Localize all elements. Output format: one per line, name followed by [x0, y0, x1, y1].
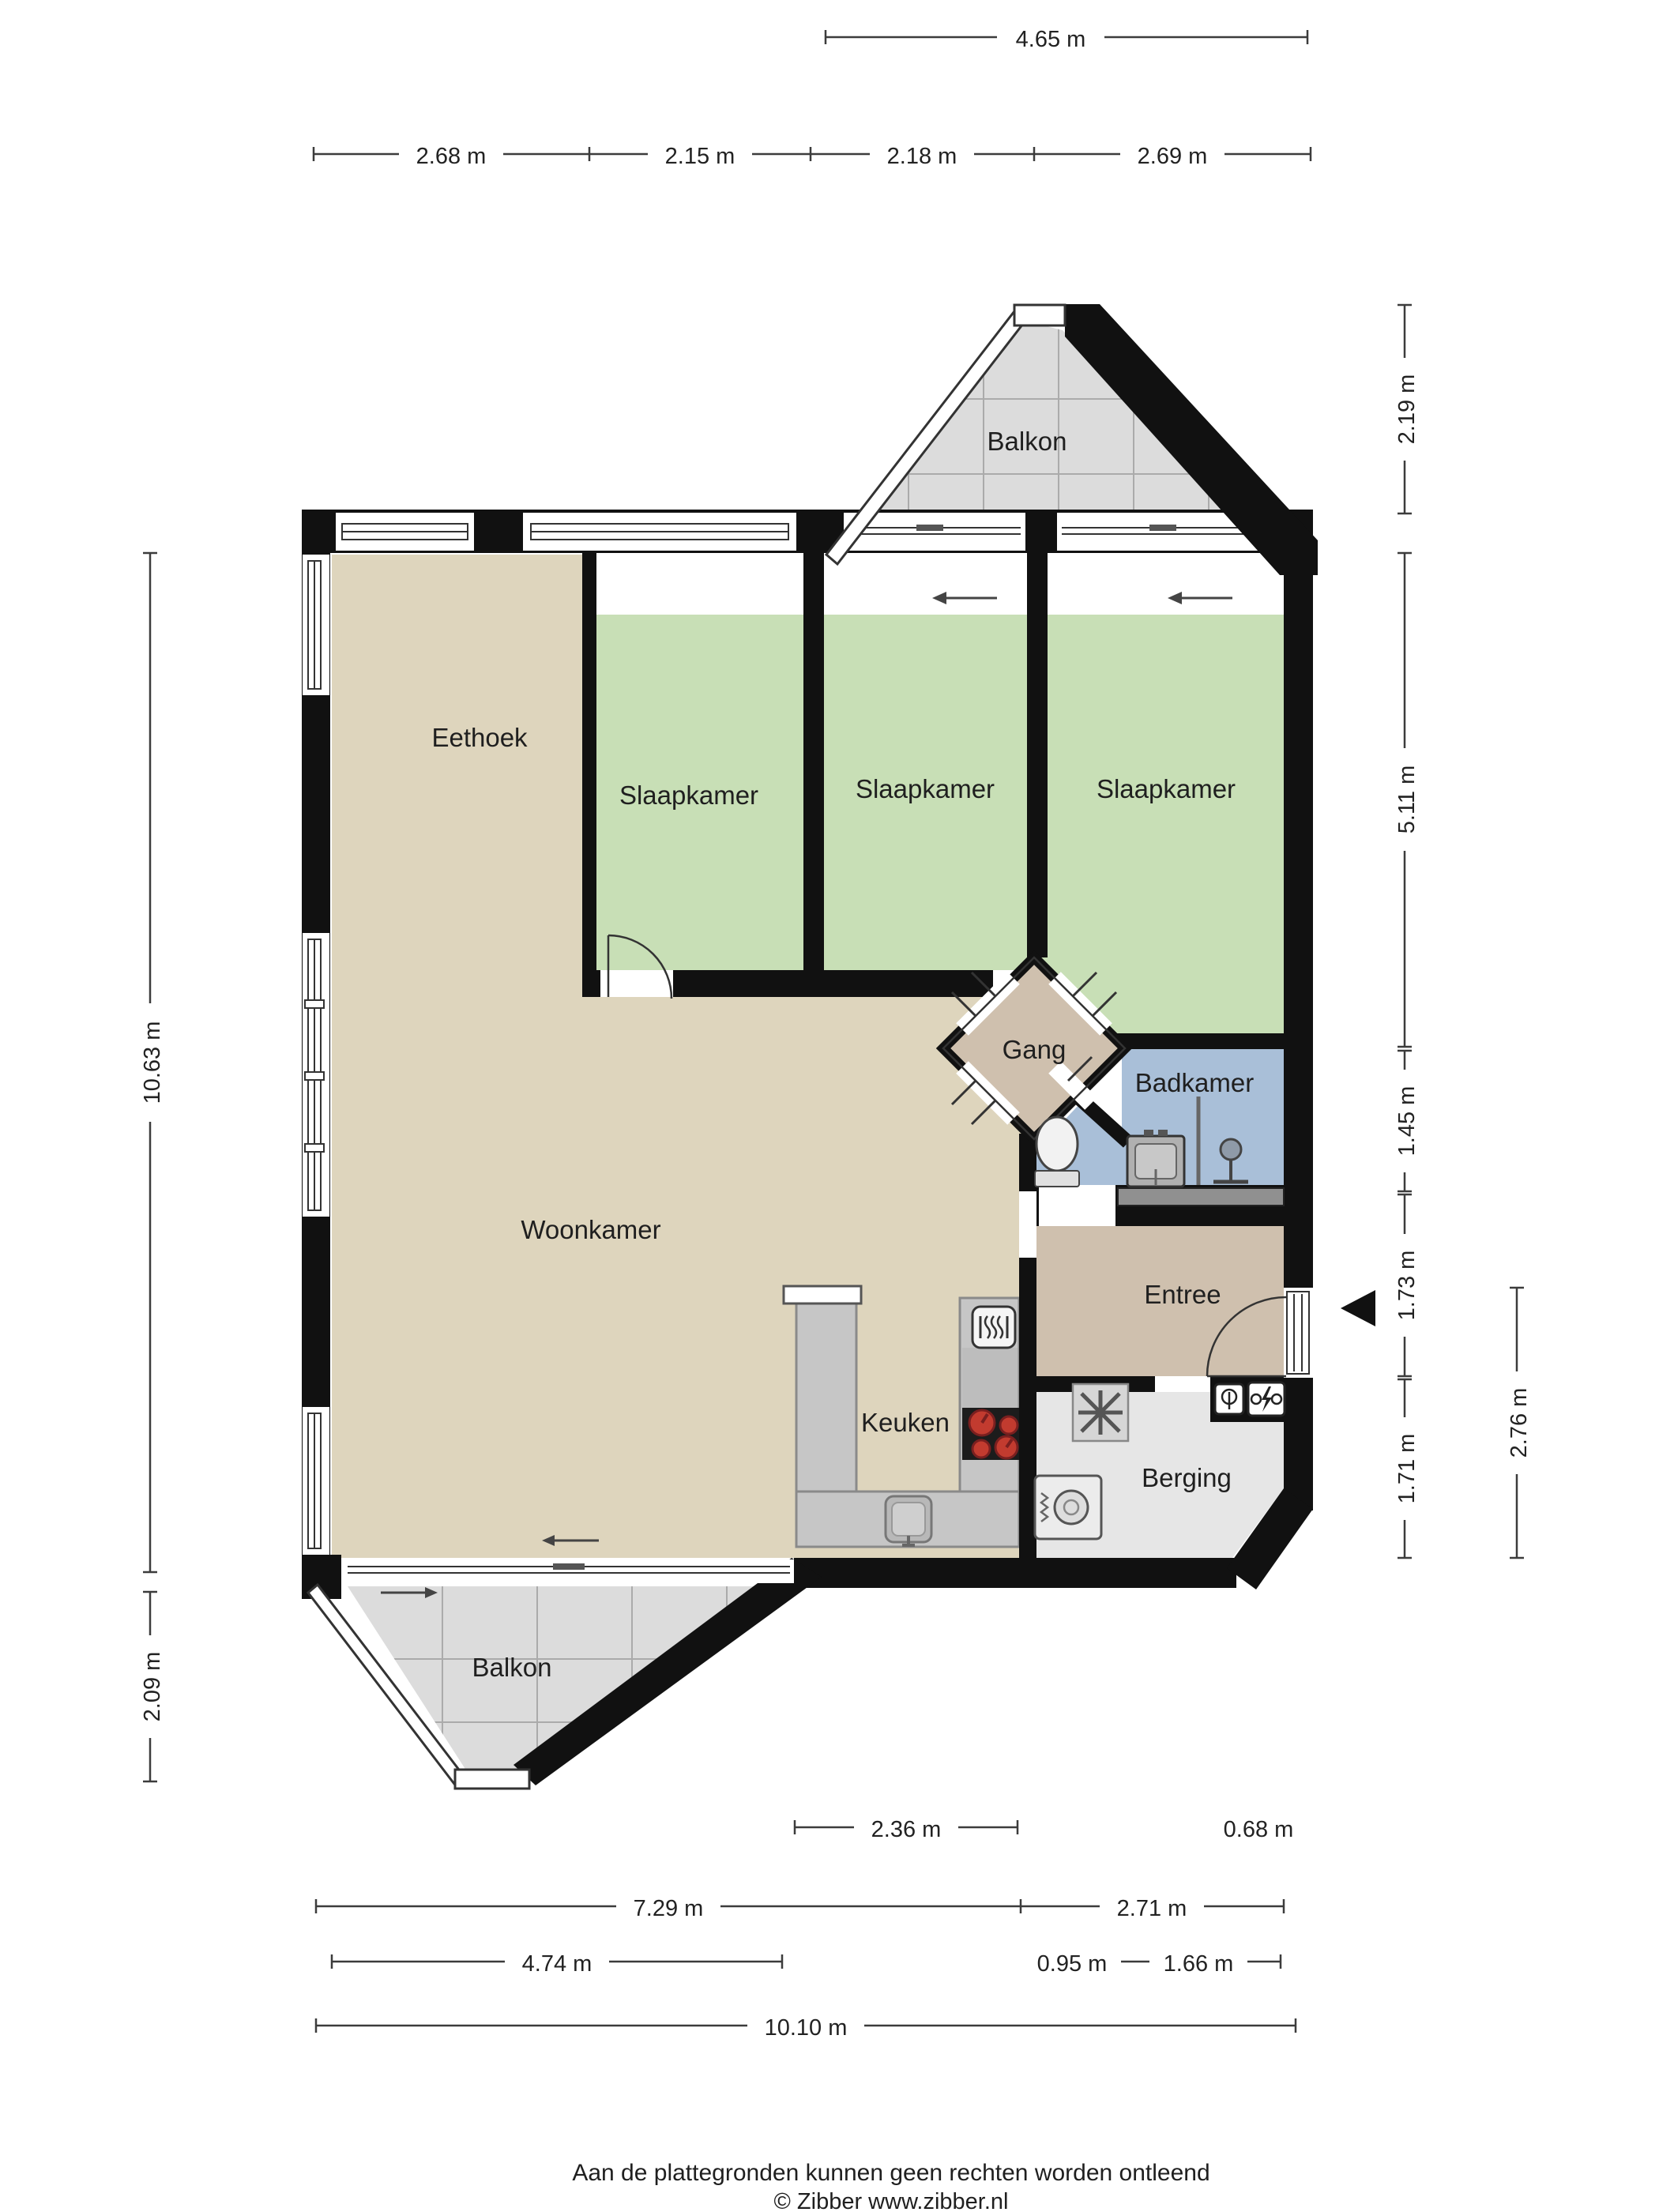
- wall-slaapkamer1-slaapkamer2: [803, 553, 824, 997]
- railing-balkon-bottom-cap: [455, 1770, 529, 1789]
- label-woonkamer: Woonkamer: [521, 1215, 660, 1244]
- dim-171: 1.71 m: [1394, 1434, 1420, 1504]
- railing-balkon-top-cap: [1014, 305, 1065, 325]
- sliding-door-woonkamer-balkon: [341, 1559, 794, 1583]
- stove-icon: [962, 1408, 1019, 1460]
- window-left-2: [303, 933, 329, 1217]
- dim-1063: 10.63 m: [140, 1021, 165, 1104]
- toilet-icon: [1035, 1117, 1079, 1187]
- opening-slaapkamer-1-door: [600, 970, 673, 997]
- meter-cupboard-icons: [1215, 1382, 1285, 1416]
- label-balkon-top: Balkon: [987, 427, 1067, 456]
- opening-woonkamer-entree: [1019, 1191, 1036, 1258]
- threshold-slaapkamer-2: [824, 553, 1027, 615]
- label-slaapkamer-1: Slaapkamer: [619, 781, 758, 810]
- label-badkamer: Badkamer: [1135, 1068, 1254, 1097]
- dim-268: 2.68 m: [416, 144, 487, 169]
- footer-disclaimer: Aan de plattegronden kunnen geen rechten…: [572, 2160, 1209, 2186]
- label-gang: Gang: [1003, 1035, 1066, 1064]
- window-left-1: [303, 555, 329, 695]
- threshold-slaapkamer-1: [596, 553, 803, 615]
- window-left-3: [303, 1407, 329, 1555]
- oven-icon: [972, 1307, 1015, 1348]
- dim-209: 2.09 m: [140, 1652, 165, 1722]
- dim-219: 2.19 m: [1394, 374, 1420, 445]
- wall-eethoek-slaapkamer1: [582, 553, 596, 997]
- counter-cap: [784, 1286, 861, 1303]
- opening-entree-berging: [1155, 1376, 1210, 1392]
- dim-729: 7.29 m: [634, 1896, 704, 1921]
- counter-right-shading: [962, 1348, 1018, 1408]
- bath-ledge: [1118, 1188, 1284, 1206]
- label-berging: Berging: [1142, 1463, 1232, 1492]
- dim-474: 4.74 m: [522, 1951, 592, 1977]
- window-eethoek: [336, 513, 474, 551]
- front-door: [1284, 1288, 1313, 1378]
- label-balkon-bottom: Balkon: [472, 1653, 552, 1682]
- footer: Aan de plattegronden kunnen geen rechten…: [572, 2160, 1209, 2212]
- label-slaapkamer-3: Slaapkamer: [1097, 774, 1236, 803]
- kitchen-sink-icon: [886, 1496, 931, 1547]
- washbasin-icon: [1127, 1130, 1184, 1187]
- dim-215: 2.15 m: [665, 144, 735, 169]
- washing-machine-icon: [1035, 1476, 1101, 1539]
- window-slaapkamer-1: [523, 513, 796, 551]
- wall-bottom: [794, 1558, 1236, 1588]
- dim-068: 0.68 m: [1224, 1817, 1294, 1842]
- label-keuken: Keuken: [861, 1408, 950, 1437]
- dim-218: 2.18 m: [887, 144, 957, 169]
- label-entree: Entree: [1144, 1280, 1221, 1309]
- dim-271: 2.71 m: [1117, 1896, 1187, 1921]
- dim-269: 2.69 m: [1138, 144, 1208, 169]
- dim-top-465: 4.65 m: [1016, 27, 1086, 52]
- entrance-arrow-icon: [1341, 1290, 1375, 1326]
- dim-236: 2.36 m: [871, 1817, 942, 1842]
- dim-145: 1.45 m: [1394, 1086, 1420, 1157]
- ventilation-icon: [1073, 1384, 1128, 1441]
- slaapkamer-3-floor: [1034, 615, 1284, 1035]
- dim-276: 2.76 m: [1507, 1388, 1532, 1458]
- label-eethoek: Eethoek: [431, 723, 528, 752]
- dim-1010: 10.10 m: [765, 2015, 848, 2041]
- opening-toilet-door: [1039, 1185, 1115, 1226]
- dim-095: 0.95 m: [1037, 1951, 1108, 1977]
- dim-166: 1.66 m: [1164, 1951, 1234, 1977]
- dim-511: 5.11 m: [1394, 766, 1420, 834]
- threshold-slaapkamer-3: [1048, 553, 1278, 615]
- floorplan-canvas: Balkon Eethoek Slaapkamer Slaapkamer Sla…: [0, 0, 1659, 2212]
- wall-slaapkamer2-slaapkamer3: [1027, 553, 1048, 957]
- footer-copyright: © Zibber www.zibber.nl: [774, 2189, 1009, 2212]
- dim-173: 1.73 m: [1394, 1251, 1420, 1321]
- label-slaapkamer-2: Slaapkamer: [856, 774, 995, 803]
